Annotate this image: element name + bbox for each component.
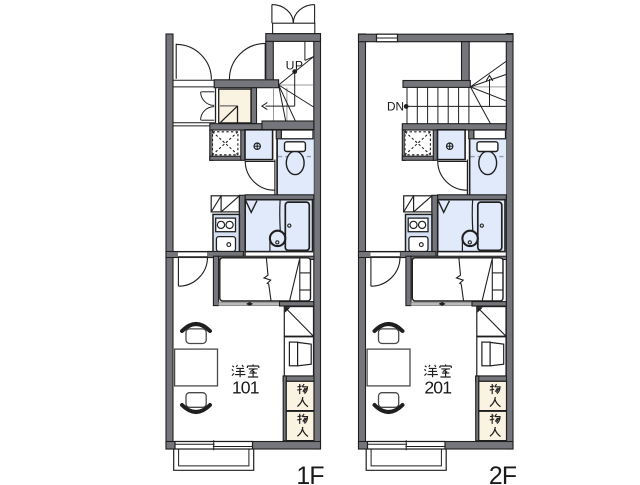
svg-text:201: 201: [424, 378, 451, 398]
svg-text:DN: DN: [387, 100, 404, 114]
svg-text:1F: 1F: [296, 463, 324, 485]
svg-text:2F: 2F: [489, 463, 517, 485]
svg-text:UP: UP: [286, 58, 304, 72]
svg-text:101: 101: [232, 378, 259, 398]
